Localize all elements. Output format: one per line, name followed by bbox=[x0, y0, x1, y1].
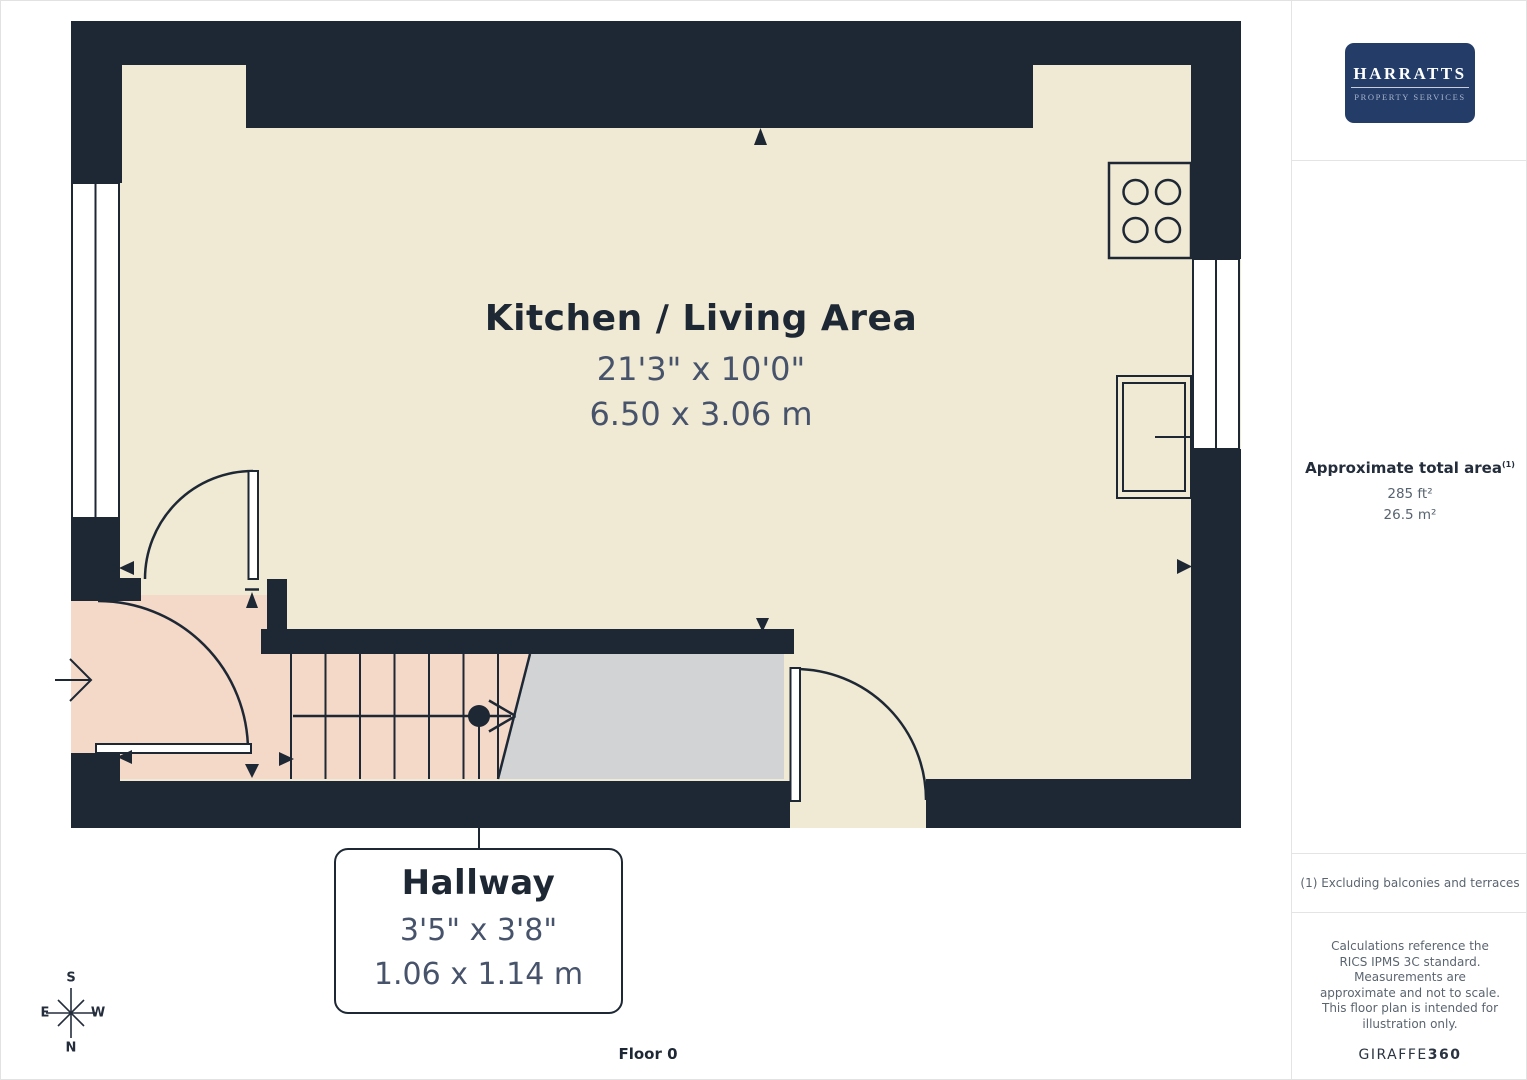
brand-suffix: 360 bbox=[1428, 1047, 1462, 1063]
agency-name: HARRATTS bbox=[1351, 64, 1468, 88]
compass-south-label: S bbox=[66, 971, 75, 986]
room-name: Hallway bbox=[336, 864, 621, 903]
floor-label: Floor 0 bbox=[618, 1045, 677, 1063]
stove-icon bbox=[1109, 163, 1191, 258]
dims-metric: 1.06 x 1.14 m bbox=[336, 953, 621, 997]
wall-right-lower bbox=[1191, 449, 1241, 828]
total-area-heading-text: Approximate total area bbox=[1305, 459, 1502, 477]
wall-top-thick bbox=[246, 65, 1033, 128]
agency-tagline: PROPERTY SERVICES bbox=[1354, 92, 1465, 102]
area-metric: 26.5 m² bbox=[1292, 505, 1527, 526]
floorplan-canvas: Kitchen / Living Area 21'3" x 10'0" 6.50… bbox=[1, 1, 1291, 1080]
room-dimensions: 3'5" x 3'8" 1.06 x 1.14 m bbox=[336, 909, 621, 996]
total-area-values: 285 ft² 26.5 m² bbox=[1292, 484, 1527, 526]
appliance-icon bbox=[1117, 376, 1194, 498]
wall-left-mid bbox=[71, 518, 120, 601]
compass-west-label: W bbox=[91, 1006, 105, 1021]
dims-imperial: 21'3" x 10'0" bbox=[351, 347, 1051, 391]
brand-name: GIRAFFE bbox=[1359, 1047, 1428, 1063]
giraffe360-brand: GIRAFFE360 bbox=[1316, 1047, 1504, 1063]
wall-right-upper bbox=[1191, 65, 1241, 259]
disclaimer-text: Calculations reference the RICS IPMS 3C … bbox=[1316, 939, 1504, 1032]
dims-imperial: 3'5" x 3'8" bbox=[336, 909, 621, 953]
window-right bbox=[1193, 259, 1239, 449]
compass-east-label: E bbox=[41, 1006, 50, 1021]
footnote-section: (1) Excluding balconies and terraces bbox=[1292, 854, 1527, 913]
disclaimer-section: Calculations reference the RICS IPMS 3C … bbox=[1292, 913, 1527, 1080]
area-imperial: 285 ft² bbox=[1292, 484, 1527, 505]
stair-landing-floor bbox=[498, 651, 784, 779]
wall-stairs bbox=[261, 629, 794, 654]
total-area-block: Approximate total area(1) 285 ft² 26.5 m… bbox=[1292, 459, 1527, 526]
info-sidebar: HARRATTS PROPERTY SERVICES Approximate t… bbox=[1291, 1, 1527, 1080]
footnote-ref: (1) bbox=[1502, 460, 1515, 469]
wall-left-lower bbox=[71, 753, 120, 828]
total-area-heading: Approximate total area(1) bbox=[1292, 459, 1527, 477]
wall-left-upper bbox=[71, 65, 122, 183]
floorplan-page: Kitchen / Living Area 21'3" x 10'0" 6.50… bbox=[0, 0, 1527, 1080]
area-section: Approximate total area(1) 285 ft² 26.5 m… bbox=[1292, 161, 1527, 854]
dims-metric: 6.50 x 3.06 m bbox=[351, 392, 1051, 436]
room-name: Kitchen / Living Area bbox=[351, 298, 1051, 339]
kitchen-living-label: Kitchen / Living Area 21'3" x 10'0" 6.50… bbox=[351, 298, 1051, 436]
hallway-label-box: Hallway 3'5" x 3'8" 1.06 x 1.14 m bbox=[334, 848, 623, 1014]
wall-stub-left-of-door bbox=[116, 578, 141, 601]
wall-top bbox=[71, 21, 1241, 65]
logo-section: HARRATTS PROPERTY SERVICES bbox=[1292, 1, 1527, 161]
wall-stub-right-of-door bbox=[267, 579, 287, 631]
window-left bbox=[72, 183, 119, 518]
floorplan-drawing bbox=[1, 1, 1291, 1080]
footnote-text: (1) Excluding balconies and terraces bbox=[1300, 876, 1519, 890]
compass-north-label: N bbox=[66, 1041, 77, 1056]
agency-logo: HARRATTS PROPERTY SERVICES bbox=[1345, 43, 1475, 123]
room-dimensions: 21'3" x 10'0" 6.50 x 3.06 m bbox=[351, 347, 1051, 435]
wall-bottom-left bbox=[120, 781, 790, 828]
compass-icon bbox=[46, 988, 96, 1038]
